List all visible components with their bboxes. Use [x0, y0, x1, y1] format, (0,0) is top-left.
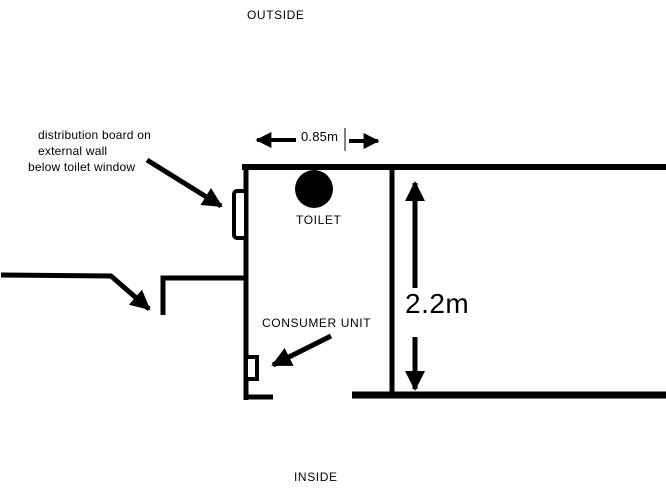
floor-plan-drawing: [0, 0, 666, 500]
inside-label: INSIDE: [294, 470, 338, 484]
paint-drawing-canvas: OUTSIDE distribution board on external w…: [0, 0, 666, 500]
toilet-circle: [295, 170, 333, 208]
outside-label: OUTSIDE: [247, 8, 305, 22]
distribution-note-line-1: distribution board on: [28, 127, 151, 143]
toilet-label: TOILET: [296, 213, 341, 227]
distribution-note-line-2: external wall: [28, 143, 151, 159]
height-dimension-label: 2.2m: [405, 297, 469, 311]
consumer-unit-box: [246, 357, 257, 379]
step-wall: [163, 278, 245, 315]
supply-arrow: [1, 275, 149, 309]
consumer-unit-label: CONSUMER UNIT: [262, 316, 371, 330]
distribution-board-box: [234, 191, 246, 238]
consumer-unit-arrow: [273, 336, 331, 365]
width-dimension-label: 0.85m: [301, 130, 338, 144]
distribution-note-line-3: below toilet window: [28, 159, 151, 175]
distribution-board-note: distribution board on external wall belo…: [28, 127, 151, 175]
distribution-board-arrow: [147, 160, 221, 206]
